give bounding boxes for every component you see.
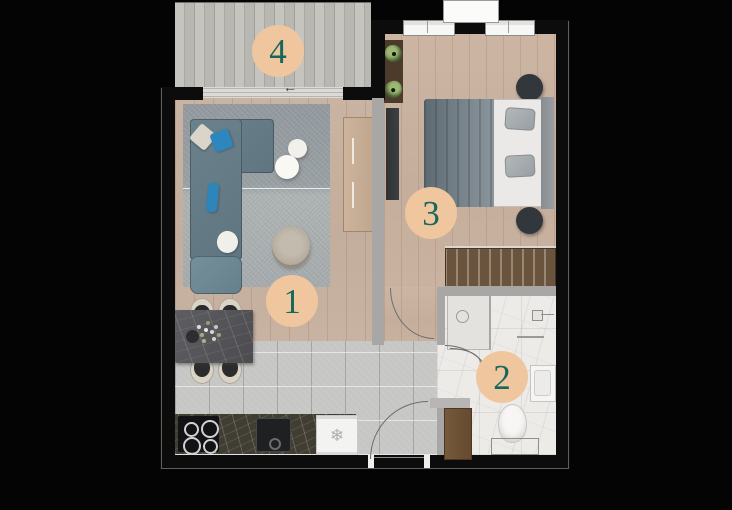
window-mullion [427, 21, 428, 33]
ac-unit [443, 0, 499, 23]
bathroom-wall-west-upper [437, 287, 445, 345]
entry-door-frame [430, 398, 470, 408]
burner [203, 439, 218, 454]
room-marker-2[interactable]: 2 [476, 351, 528, 403]
bed-headboard [541, 97, 554, 209]
burner [184, 422, 199, 437]
shower-tray [447, 292, 490, 350]
floor-plan: ← ❄ [0, 0, 732, 510]
shower-head-arm [541, 314, 554, 315]
wall-stub-balcony-right [343, 87, 371, 100]
wall-left [160, 87, 175, 468]
wall-bottom [160, 455, 570, 469]
shower-drain [456, 310, 469, 323]
flower-bouquet [204, 328, 208, 332]
window-mullion [508, 21, 509, 33]
plan-outline-right [568, 21, 569, 468]
sofa-chaise [190, 256, 242, 294]
sideboard-handle [352, 138, 354, 164]
sink-drain [269, 438, 281, 450]
potted-plant [385, 45, 402, 62]
wall-stub-balcony-left [175, 87, 203, 100]
bathroom-wall-north [445, 286, 556, 296]
room-marker-4[interactable]: 4 [252, 25, 304, 77]
tv-sideboard [343, 117, 374, 232]
bathroom-sink-basin [534, 370, 551, 396]
room-marker-1-number: 1 [283, 284, 301, 319]
room-marker-1[interactable]: 1 [266, 275, 318, 327]
shower-head [532, 310, 543, 321]
nightstand [516, 74, 543, 101]
side-table-large [275, 155, 299, 179]
burner [201, 420, 219, 438]
room-marker-3[interactable]: 3 [405, 187, 457, 239]
vase [186, 330, 199, 343]
nightstand [516, 207, 543, 234]
room-marker-2-number: 2 [493, 360, 511, 395]
towel-rail [517, 336, 544, 338]
armchair [272, 227, 310, 268]
fridge: ❄ [316, 415, 358, 456]
wall-balcony-bedroom [371, 34, 385, 100]
wardrobe [445, 246, 556, 289]
bedroom-tv [386, 108, 399, 200]
burner [183, 437, 201, 455]
snowflake-icon: ❄ [330, 426, 344, 446]
plan-outline-left [161, 88, 162, 468]
room-marker-3-number: 3 [422, 196, 440, 231]
partition-living-bedroom [372, 98, 384, 345]
sideboard-handle [352, 182, 354, 208]
bed-pillow [504, 154, 535, 178]
entry-door-leaf [444, 408, 472, 460]
plan-outline-bottom [161, 468, 569, 469]
shower-glass-panel [489, 292, 491, 350]
balcony-door-arrow-icon: ← [283, 80, 297, 94]
toilet-cistern-outline [491, 438, 539, 455]
bed-pillow [504, 107, 535, 131]
room-marker-4-number: 4 [269, 34, 287, 69]
